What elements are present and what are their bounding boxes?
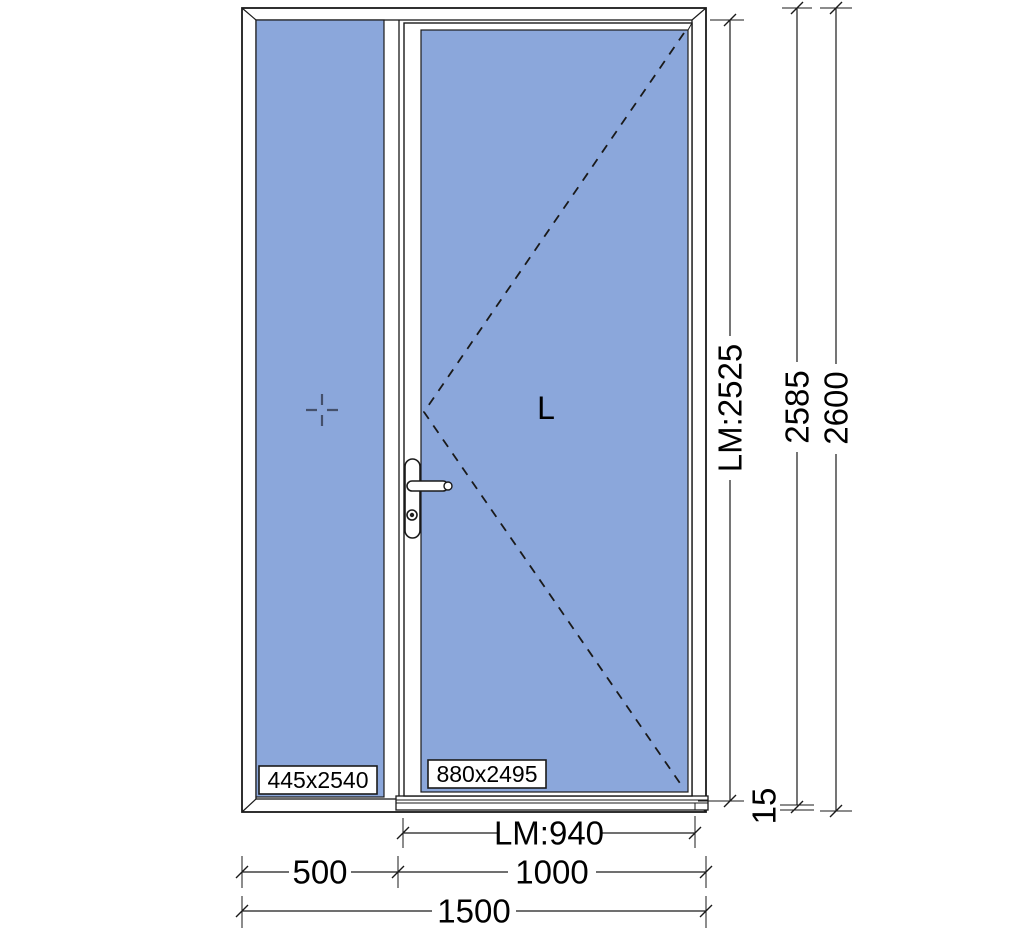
- opening-symbol-label: L: [537, 390, 555, 426]
- door-glass-size: 880x2495: [436, 761, 537, 787]
- threshold: [396, 796, 708, 810]
- dim-threshold: 15: [746, 788, 783, 825]
- handle-backplate: [405, 459, 420, 538]
- dim-height-2585: 2585: [779, 370, 816, 443]
- door-technical-drawing: L 445x2540 880x2495 LM:940 500 1000 1500: [0, 0, 1024, 944]
- side-panel-glass: [256, 20, 384, 797]
- dim-height-2600: 2600: [818, 371, 855, 444]
- door-sash: L: [404, 23, 692, 796]
- handle-lever-end: [444, 482, 452, 490]
- dim-width-door: 1000: [515, 854, 588, 891]
- side-panel: [256, 20, 384, 797]
- bottom-dimensions: LM:940 500 1000 1500: [236, 815, 712, 930]
- side-panel-glass-size: 445x2540: [267, 767, 368, 793]
- dim-lm-width: LM:940: [494, 815, 604, 852]
- handle-lever: [407, 481, 448, 491]
- dim-width-total: 1500: [437, 893, 510, 930]
- dim-width-side: 500: [292, 854, 347, 891]
- handle-keyhole-center: [410, 513, 414, 517]
- right-dimensions: LM:2525 2585 2600 15: [698, 2, 855, 824]
- drawing-canvas: L 445x2540 880x2495 LM:940 500 1000 1500: [0, 0, 1024, 944]
- dim-lm-height: LM:2525: [712, 344, 749, 472]
